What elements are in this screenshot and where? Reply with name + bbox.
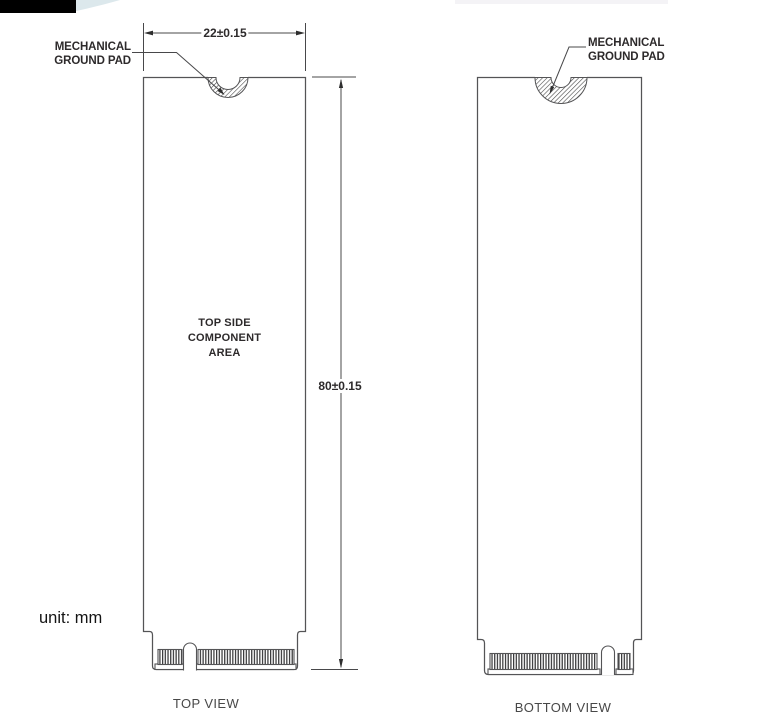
key-notch bbox=[602, 646, 615, 675]
edge-connector-bottom-view bbox=[488, 646, 633, 675]
unit-note: unit: mm bbox=[39, 609, 102, 628]
top-view-board-outline bbox=[144, 78, 306, 670]
ground-pad-notch-icon bbox=[208, 78, 248, 98]
ground-pad-label-line2: GROUND PAD bbox=[588, 51, 698, 65]
ground-pad-label-line1: MECHANICAL bbox=[30, 41, 131, 55]
gold-fingers-small-group bbox=[158, 650, 182, 665]
height-dimension bbox=[311, 77, 358, 670]
height-dimension-value: 80±0.15 bbox=[316, 379, 363, 393]
component-area-line1: TOP SIDE bbox=[143, 316, 306, 331]
ground-pad-leader-left bbox=[132, 53, 225, 96]
top-side-component-area-label: TOP SIDE COMPONENT AREA bbox=[143, 316, 306, 361]
bottom-view-board-outline bbox=[478, 78, 642, 675]
gold-fingers-large-group bbox=[198, 650, 294, 665]
ground-pad-label-line1: MECHANICAL bbox=[588, 37, 698, 51]
ground-pad-notch-icon bbox=[535, 78, 587, 104]
component-area-line2: COMPONENT bbox=[143, 331, 306, 346]
key-notch bbox=[184, 643, 197, 671]
ground-pad-label-right: MECHANICAL GROUND PAD bbox=[588, 37, 698, 65]
gold-fingers-large-group bbox=[490, 654, 597, 670]
top-view-drawing bbox=[144, 78, 306, 671]
ground-pad-label-left: MECHANICAL GROUND PAD bbox=[30, 41, 131, 69]
component-area-line3: AREA bbox=[143, 346, 306, 361]
gold-fingers-small-group bbox=[618, 654, 630, 670]
mechanical-drawing-page: MECHANICAL GROUND PAD MECHANICAL GROUND … bbox=[0, 0, 762, 728]
width-dimension-value: 22±0.15 bbox=[201, 26, 248, 40]
bottom-view-caption: BOTTOM VIEW bbox=[515, 700, 612, 715]
top-view-caption: TOP VIEW bbox=[173, 696, 239, 711]
ground-pad-label-line2: GROUND PAD bbox=[30, 55, 131, 69]
bottom-view-drawing bbox=[478, 78, 642, 676]
edge-connector-top-view bbox=[155, 643, 296, 671]
m2-module-line-drawing bbox=[0, 0, 762, 728]
